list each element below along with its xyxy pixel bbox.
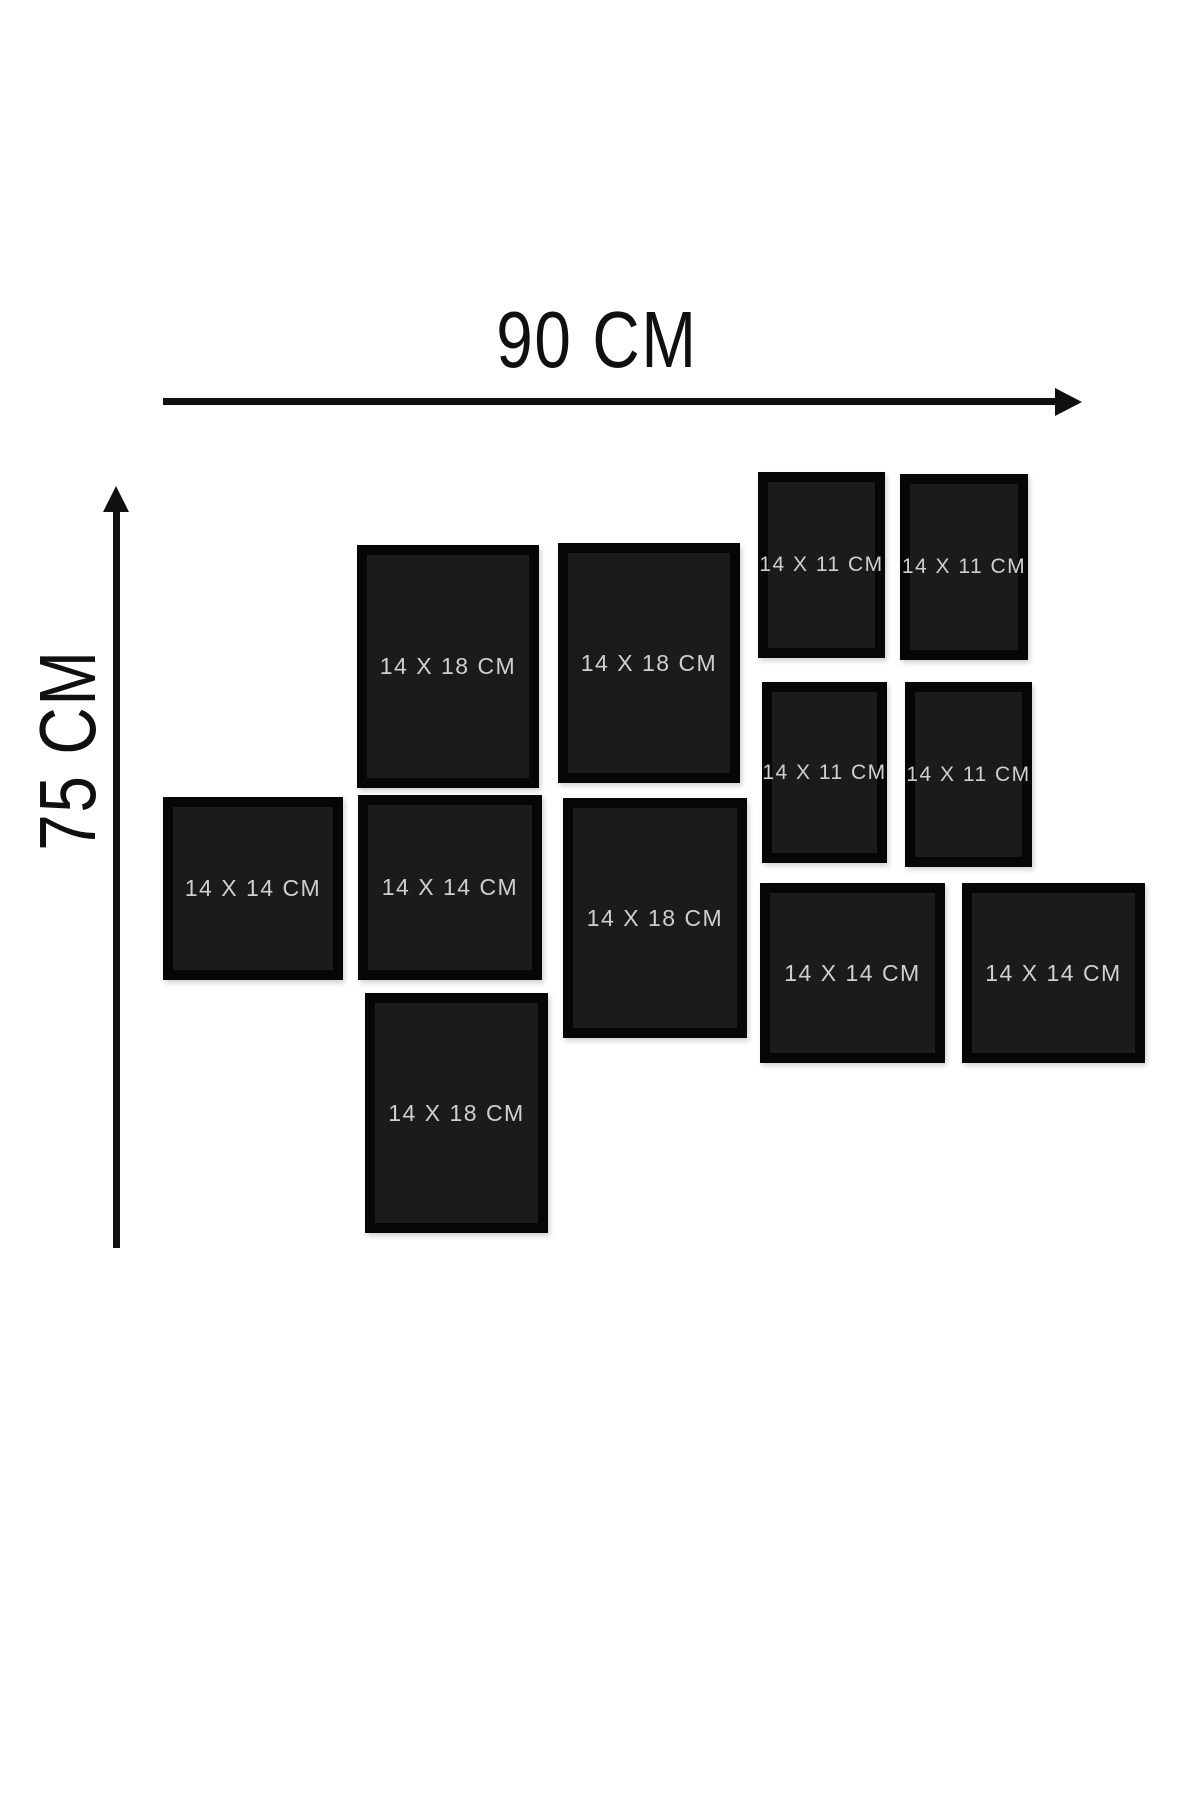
frame-mat: 14 X 18 CM <box>367 555 529 778</box>
height-arrow-up-icon <box>103 486 129 512</box>
frame-mat: 14 X 14 CM <box>368 805 532 970</box>
photo-frame-14x18-12: 14 X 18 CM <box>365 993 548 1233</box>
height-dimension-label: 75 CM <box>26 627 110 873</box>
photo-frame-14x14-11: 14 X 14 CM <box>962 883 1145 1063</box>
frame-size-label: 14 X 18 CM <box>388 1100 524 1127</box>
frame-size-label: 14 X 14 CM <box>784 960 920 987</box>
frame-size-label: 14 X 11 CM <box>762 761 886 785</box>
photo-frame-14x11-5: 14 X 11 CM <box>762 682 887 863</box>
frame-mat: 14 X 11 CM <box>772 692 877 853</box>
width-dimension-label: 90 CM <box>351 300 843 380</box>
photo-frame-14x18-1: 14 X 18 CM <box>357 545 539 788</box>
frame-collage-diagram: 90 CM 75 CM 14 X 18 CM14 X 18 CM14 X 11 … <box>0 0 1200 1800</box>
frame-mat: 14 X 18 CM <box>568 553 730 773</box>
photo-frame-14x11-6: 14 X 11 CM <box>905 682 1032 867</box>
photo-frame-14x11-4: 14 X 11 CM <box>900 474 1028 660</box>
photo-frame-14x11-3: 14 X 11 CM <box>758 472 885 658</box>
photo-frame-14x14-8: 14 X 14 CM <box>358 795 542 980</box>
frame-size-label: 14 X 18 CM <box>581 650 717 677</box>
frame-size-label: 14 X 11 CM <box>759 553 883 577</box>
width-arrow-right-icon <box>1055 388 1082 416</box>
frame-size-label: 14 X 11 CM <box>902 555 1026 579</box>
frame-size-label: 14 X 18 CM <box>587 905 723 932</box>
frame-mat: 14 X 18 CM <box>573 808 737 1028</box>
photo-frame-14x14-10: 14 X 14 CM <box>760 883 945 1063</box>
frame-mat: 14 X 11 CM <box>915 692 1022 857</box>
photo-frame-14x18-9: 14 X 18 CM <box>563 798 747 1038</box>
frame-size-label: 14 X 11 CM <box>906 763 1030 787</box>
frame-mat: 14 X 11 CM <box>910 484 1018 650</box>
frame-mat: 14 X 14 CM <box>173 807 333 970</box>
frame-mat: 14 X 11 CM <box>768 482 875 648</box>
width-arrow-line <box>163 398 1057 405</box>
height-arrow-line <box>113 508 120 1248</box>
frame-size-label: 14 X 18 CM <box>380 653 516 680</box>
frame-size-label: 14 X 14 CM <box>185 875 321 902</box>
frame-size-label: 14 X 14 CM <box>985 960 1121 987</box>
photo-frame-14x18-2: 14 X 18 CM <box>558 543 740 783</box>
frame-size-label: 14 X 14 CM <box>382 874 518 901</box>
photo-frame-14x14-7: 14 X 14 CM <box>163 797 343 980</box>
frame-mat: 14 X 14 CM <box>770 893 935 1053</box>
frame-mat: 14 X 18 CM <box>375 1003 538 1223</box>
frame-mat: 14 X 14 CM <box>972 893 1135 1053</box>
